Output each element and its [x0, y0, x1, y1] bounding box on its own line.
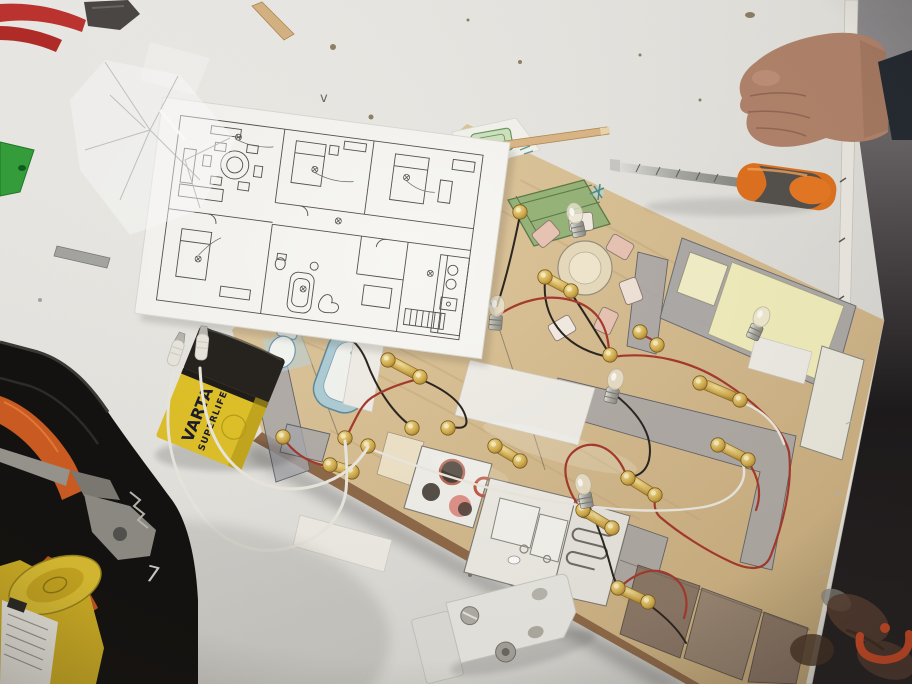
photo-canvas: v — [0, 0, 912, 684]
photo: v — [0, 0, 912, 684]
vignette — [0, 0, 912, 684]
